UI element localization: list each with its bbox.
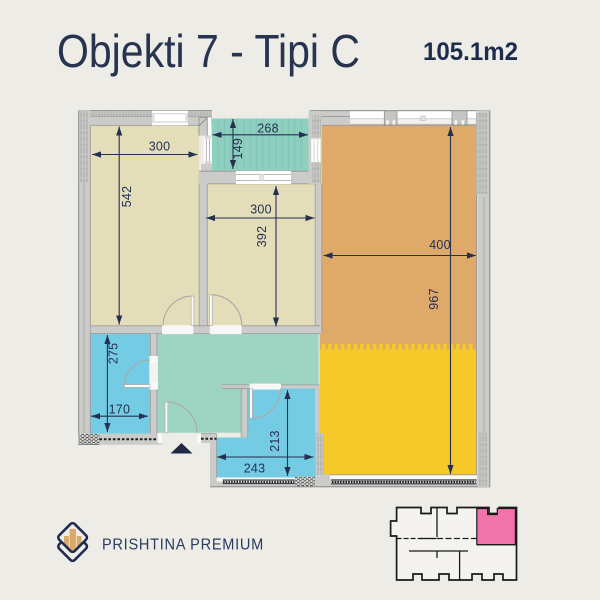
svg-text:149: 149 [231,138,245,159]
svg-text:Objekti 7 - Tipi C: Objekti 7 - Tipi C [57,25,360,77]
svg-text:967: 967 [427,288,441,309]
svg-text:170: 170 [109,403,130,417]
svg-text:392: 392 [255,226,269,247]
svg-text:105.1m2: 105.1m2 [423,38,518,66]
svg-text:243: 243 [244,462,265,476]
svg-text:400: 400 [429,238,450,252]
svg-text:268: 268 [257,122,278,136]
svg-text:300: 300 [149,140,170,154]
svg-text:275: 275 [107,343,121,364]
svg-text:300: 300 [250,203,271,217]
svg-text:213: 213 [268,430,282,451]
svg-text:542: 542 [120,186,134,207]
svg-text:PRISHTINA PREMIUM: PRISHTINA PREMIUM [102,537,264,554]
